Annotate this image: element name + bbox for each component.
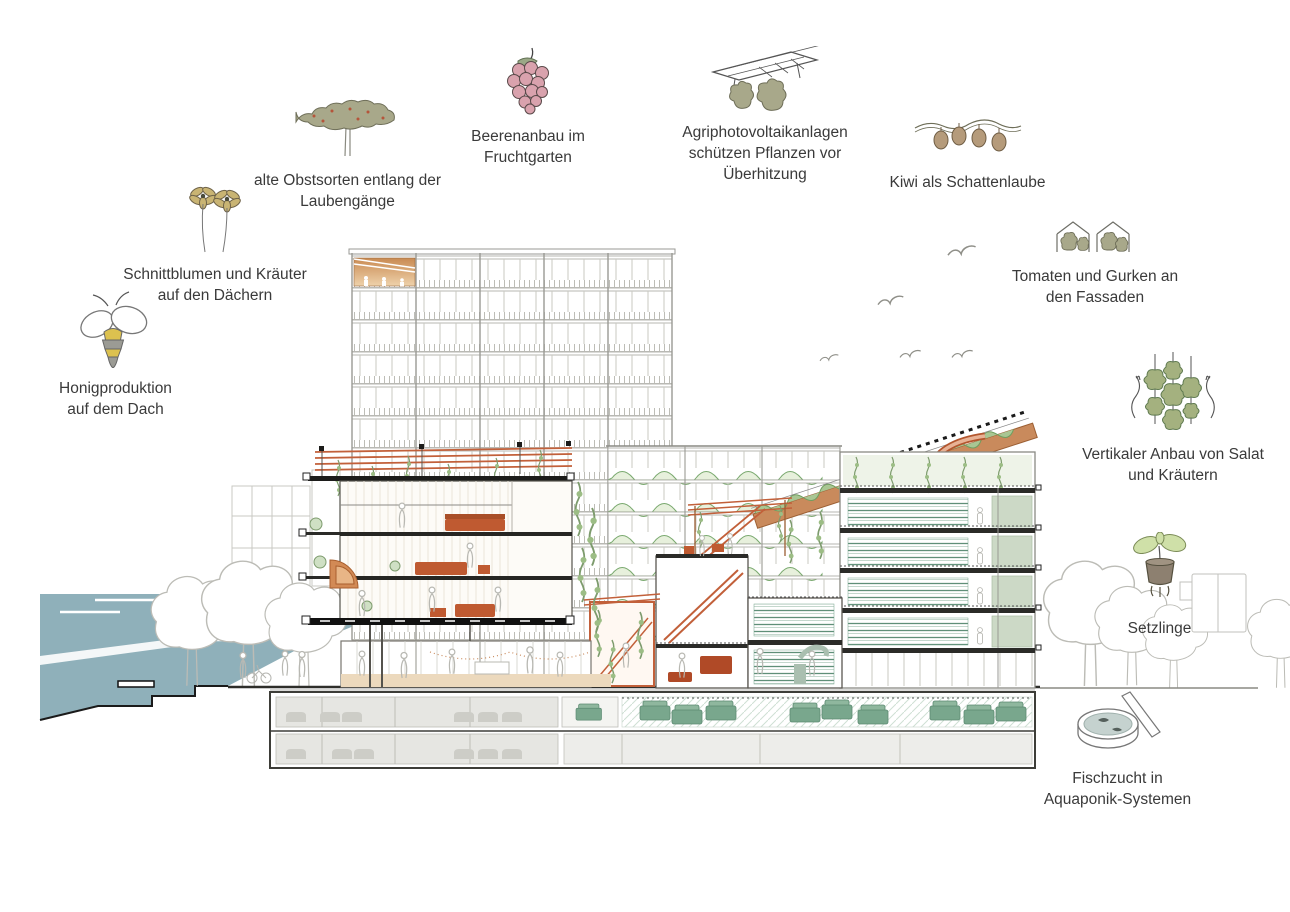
cut-flowers-icon	[183, 186, 247, 260]
basement-levels	[270, 692, 1035, 768]
annotation-berry-cultivation: Beerenanbau im Fruchtgarten	[448, 46, 608, 168]
annotation-seedlings: Setzlinge	[1102, 532, 1217, 639]
bee-icon	[74, 290, 158, 374]
label-line: Überhitzung	[682, 164, 847, 185]
facade-greenhouse-icon	[1053, 218, 1137, 262]
label-line: Setzlinge	[1128, 618, 1192, 639]
annotation-label: Agriphotovoltaikanlagen schützen Pflanze…	[682, 122, 847, 185]
rack-room	[748, 597, 842, 688]
tower-top-interior	[354, 258, 415, 286]
annotation-kiwi-shade-arbor: Kiwi als Schattenlaube	[865, 110, 1070, 193]
seedling-pot-icon	[1128, 532, 1192, 614]
label-line: Fischzucht in	[1044, 768, 1191, 789]
kiwi-vine-icon	[913, 110, 1023, 168]
label-line: und Kräutern	[1082, 465, 1264, 486]
label-line: Kiwi als Schattenlaube	[890, 172, 1046, 193]
vertical-farm-block	[840, 452, 1041, 688]
annotation-label: Fischzucht in Aquaponik-Systemen	[1044, 768, 1191, 810]
label-line: Tomaten und Gurken an	[1012, 266, 1178, 287]
annotation-tomatoes-cucumbers: Tomaten und Gurken an den Fassaden	[995, 218, 1195, 308]
terrace-room	[656, 534, 748, 688]
label-line: Aquaponik-Systemen	[1044, 789, 1191, 810]
label-line: auf dem Dach	[59, 399, 172, 420]
label-line: Agriphotovoltaikanlagen	[682, 122, 847, 143]
annotation-label: Kiwi als Schattenlaube	[890, 172, 1046, 193]
illustration-canvas: alte Obstsorten entlang der Laubengänge …	[0, 0, 1290, 912]
annotation-label: Tomaten und Gurken an den Fassaden	[1012, 266, 1178, 308]
label-line: schützen Pflanzen vor	[682, 143, 847, 164]
aquaponics-tank-icon	[1070, 690, 1166, 764]
annotation-label: Honigproduktion auf dem Dach	[59, 378, 172, 420]
label-line: den Fassaden	[1012, 287, 1178, 308]
annotation-label: Vertikaler Anbau von Salat und Kräutern	[1082, 444, 1264, 486]
fruit-tree-icon	[288, 96, 408, 166]
berry-icon	[501, 46, 555, 122]
annotation-label: Beerenanbau im Fruchtgarten	[471, 126, 585, 168]
label-line: Schnittblumen und Kräuter	[123, 264, 307, 285]
annotation-cut-flowers-herbs: Schnittblumen und Kräuter auf den Dächer…	[115, 186, 315, 306]
annotation-honey-production: Honigproduktion auf dem Dach	[38, 290, 193, 420]
label-line: Vertikaler Anbau von Salat	[1082, 444, 1264, 465]
solar-panel-trees-icon	[705, 46, 825, 118]
annotation-vertical-growing: Vertikaler Anbau von Salat und Kräutern	[1068, 352, 1278, 486]
label-line: Honigproduktion	[59, 378, 172, 399]
vertical-plants-icon	[1125, 352, 1221, 440]
annotation-label: Setzlinge	[1128, 618, 1192, 639]
label-line: Beerenanbau im	[471, 126, 585, 147]
annotation-fish-farming: Fischzucht in Aquaponik-Systemen	[1020, 690, 1215, 810]
annotation-agri-photovoltaics: Agriphotovoltaikanlagen schützen Pflanze…	[660, 46, 870, 185]
label-line: Fruchtgarten	[471, 147, 585, 168]
birds	[820, 246, 976, 361]
